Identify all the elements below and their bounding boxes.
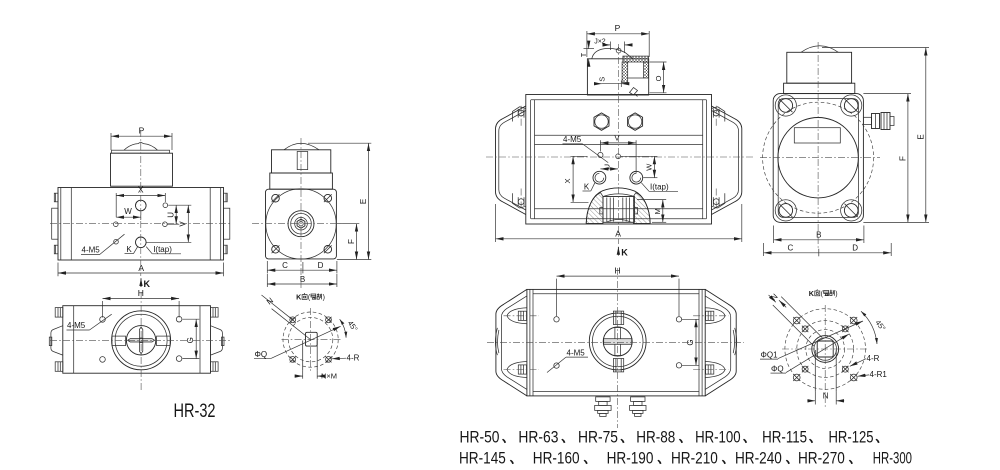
svg-text:I(tap): I(tap) (153, 245, 172, 254)
svg-text:HR-75: HR-75 (578, 429, 618, 447)
svg-text:HR-50: HR-50 (460, 429, 500, 447)
svg-text:P: P (139, 126, 145, 136)
svg-text:4-R: 4-R (867, 354, 880, 363)
svg-text:D: D (852, 243, 858, 252)
svg-text:ΦQ: ΦQ (255, 350, 268, 359)
svg-text:V: V (614, 134, 619, 143)
svg-text:B: B (300, 275, 305, 284)
svg-text:HR-145: HR-145 (459, 450, 506, 468)
svg-text:I(tap): I(tap) (650, 183, 669, 192)
svg-text:): ) (835, 291, 837, 298)
svg-text:K: K (584, 182, 590, 191)
svg-text:4-R: 4-R (347, 353, 360, 362)
svg-text:U: U (166, 212, 175, 218)
svg-text:O: O (654, 75, 663, 81)
svg-text:W: W (645, 163, 654, 171)
svg-text:HR-32: HR-32 (174, 401, 216, 422)
svg-text:4-M5: 4-M5 (567, 348, 586, 357)
svg-text:4-R1: 4-R1 (870, 370, 888, 379)
svg-text:F: F (899, 156, 908, 161)
svg-text:F: F (347, 239, 356, 244)
svg-text:HR-125: HR-125 (829, 429, 874, 447)
svg-text:HR-100: HR-100 (695, 429, 741, 447)
svg-text:HR-88: HR-88 (636, 429, 675, 447)
svg-text:HR-270: HR-270 (798, 450, 845, 468)
svg-text:N×M: N×M (321, 371, 337, 380)
svg-text:C: C (282, 261, 288, 270)
svg-text:E: E (359, 199, 368, 204)
svg-text:): ) (323, 294, 325, 301)
svg-text:C: C (788, 243, 794, 252)
svg-text:U: U (602, 164, 611, 169)
svg-text:K: K (621, 248, 628, 258)
svg-text:HR-210: HR-210 (671, 450, 718, 468)
svg-text:K: K (296, 292, 302, 301)
svg-text:S: S (597, 77, 606, 82)
svg-text:ΦQ1: ΦQ1 (761, 350, 779, 359)
svg-text:HR-240: HR-240 (735, 450, 782, 468)
svg-text:HR-190: HR-190 (607, 450, 654, 468)
svg-text:N: N (823, 392, 829, 401)
svg-text:W: W (124, 207, 132, 216)
svg-text:M: M (653, 208, 662, 214)
svg-text:K: K (809, 289, 815, 298)
svg-text:4-M5: 4-M5 (563, 135, 582, 144)
svg-text:HR-115: HR-115 (762, 429, 807, 447)
svg-text:X: X (563, 178, 572, 183)
svg-text:K: K (126, 245, 132, 254)
svg-text:E: E (916, 134, 925, 139)
svg-text:K: K (144, 279, 151, 289)
svg-text:J×2: J×2 (594, 39, 606, 46)
svg-text:ΦQ: ΦQ (771, 364, 784, 373)
svg-text:4-M5: 4-M5 (82, 246, 101, 255)
svg-text:4-M5: 4-M5 (67, 321, 86, 330)
svg-text:HR-63: HR-63 (518, 429, 558, 447)
svg-text:HR-160: HR-160 (533, 450, 580, 468)
svg-text:A: A (138, 263, 144, 273)
svg-text:T: T (581, 52, 588, 57)
svg-text:P: P (615, 23, 621, 33)
svg-text:D: D (318, 261, 324, 270)
svg-text:B: B (816, 230, 821, 239)
svg-text:HR-300: HR-300 (873, 450, 912, 468)
